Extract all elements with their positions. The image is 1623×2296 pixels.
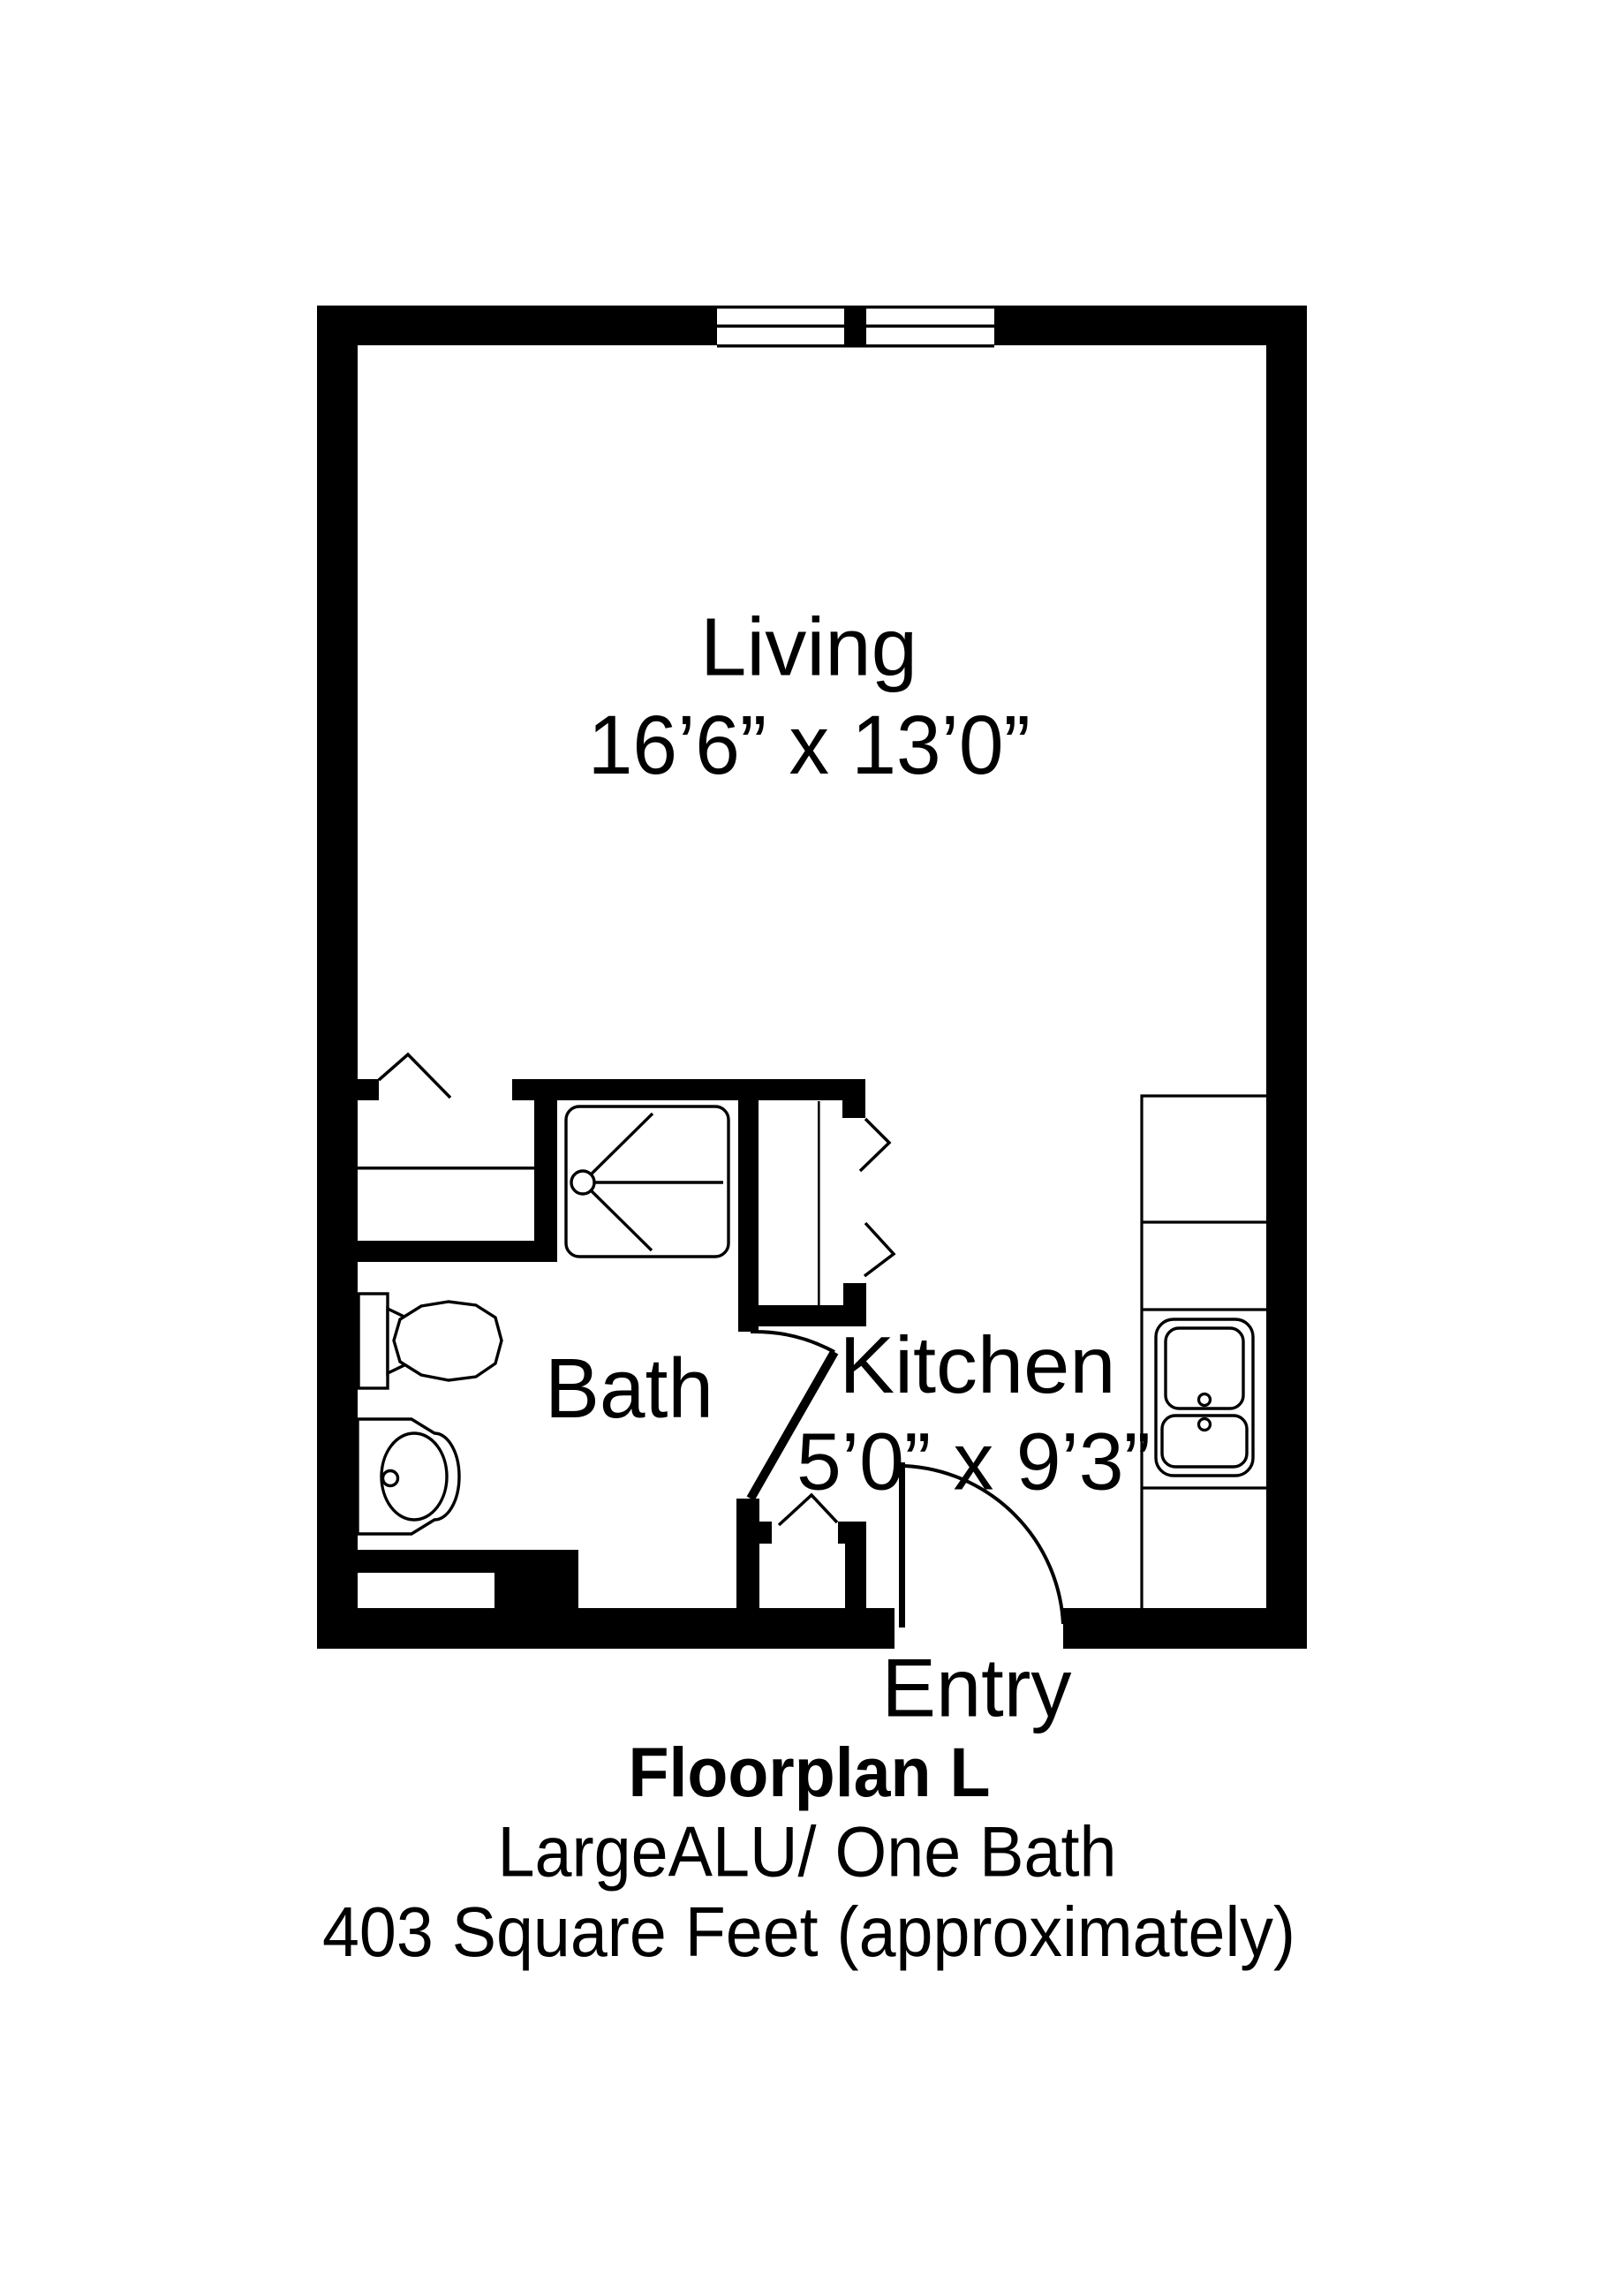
- svg-text:LargeALU/ One Bath: LargeALU/ One Bath: [498, 1813, 1117, 1892]
- svg-text:Entry: Entry: [882, 1642, 1072, 1734]
- svg-text:5’0” x 9’3”: 5’0” x 9’3”: [796, 1417, 1151, 1507]
- svg-text:Floorplan L: Floorplan L: [629, 1733, 991, 1811]
- svg-text:16’6” x 13’0”: 16’6” x 13’0”: [588, 699, 1030, 792]
- svg-text:Living: Living: [700, 601, 917, 693]
- svg-text:Bath: Bath: [545, 1341, 713, 1436]
- svg-text:Kitchen: Kitchen: [840, 1321, 1116, 1410]
- svg-text:403 Square Feet (approximately: 403 Square Feet (approximately): [322, 1892, 1295, 1971]
